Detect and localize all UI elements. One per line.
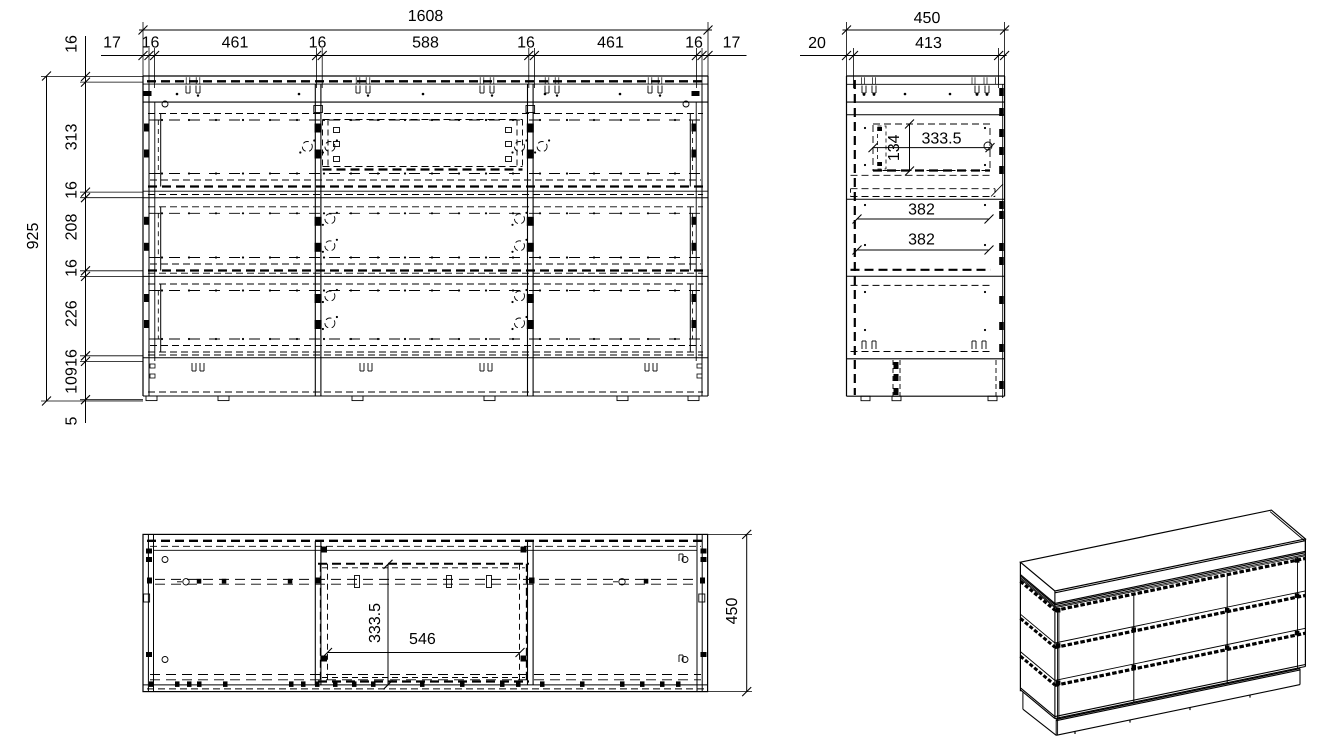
svg-text:382: 382 [908,232,935,249]
svg-text:16: 16 [64,35,81,53]
svg-text:17: 17 [103,35,121,52]
svg-text:17: 17 [723,35,741,52]
svg-text:109: 109 [64,367,81,394]
svg-text:461: 461 [222,35,249,52]
svg-text:450: 450 [914,10,941,27]
svg-text:5: 5 [64,416,81,425]
svg-text:134: 134 [886,134,903,161]
svg-text:925: 925 [25,223,42,250]
svg-text:1608: 1608 [408,8,444,25]
svg-text:16: 16 [64,181,81,199]
svg-text:16: 16 [64,349,81,367]
svg-text:16: 16 [517,35,535,52]
svg-text:588: 588 [412,35,439,52]
svg-text:16: 16 [685,35,703,52]
svg-text:16: 16 [64,259,81,277]
svg-text:413: 413 [915,35,942,52]
svg-text:226: 226 [64,300,81,327]
svg-text:16: 16 [309,35,327,52]
svg-text:461: 461 [597,35,624,52]
svg-text:546: 546 [409,631,436,648]
svg-text:313: 313 [64,124,81,151]
svg-text:16: 16 [142,35,160,52]
svg-text:450: 450 [724,598,741,625]
svg-text:333.5: 333.5 [921,131,961,148]
svg-text:382: 382 [908,202,935,219]
svg-text:208: 208 [64,214,81,241]
svg-text:20: 20 [808,35,826,52]
svg-text:333.5: 333.5 [367,603,384,643]
